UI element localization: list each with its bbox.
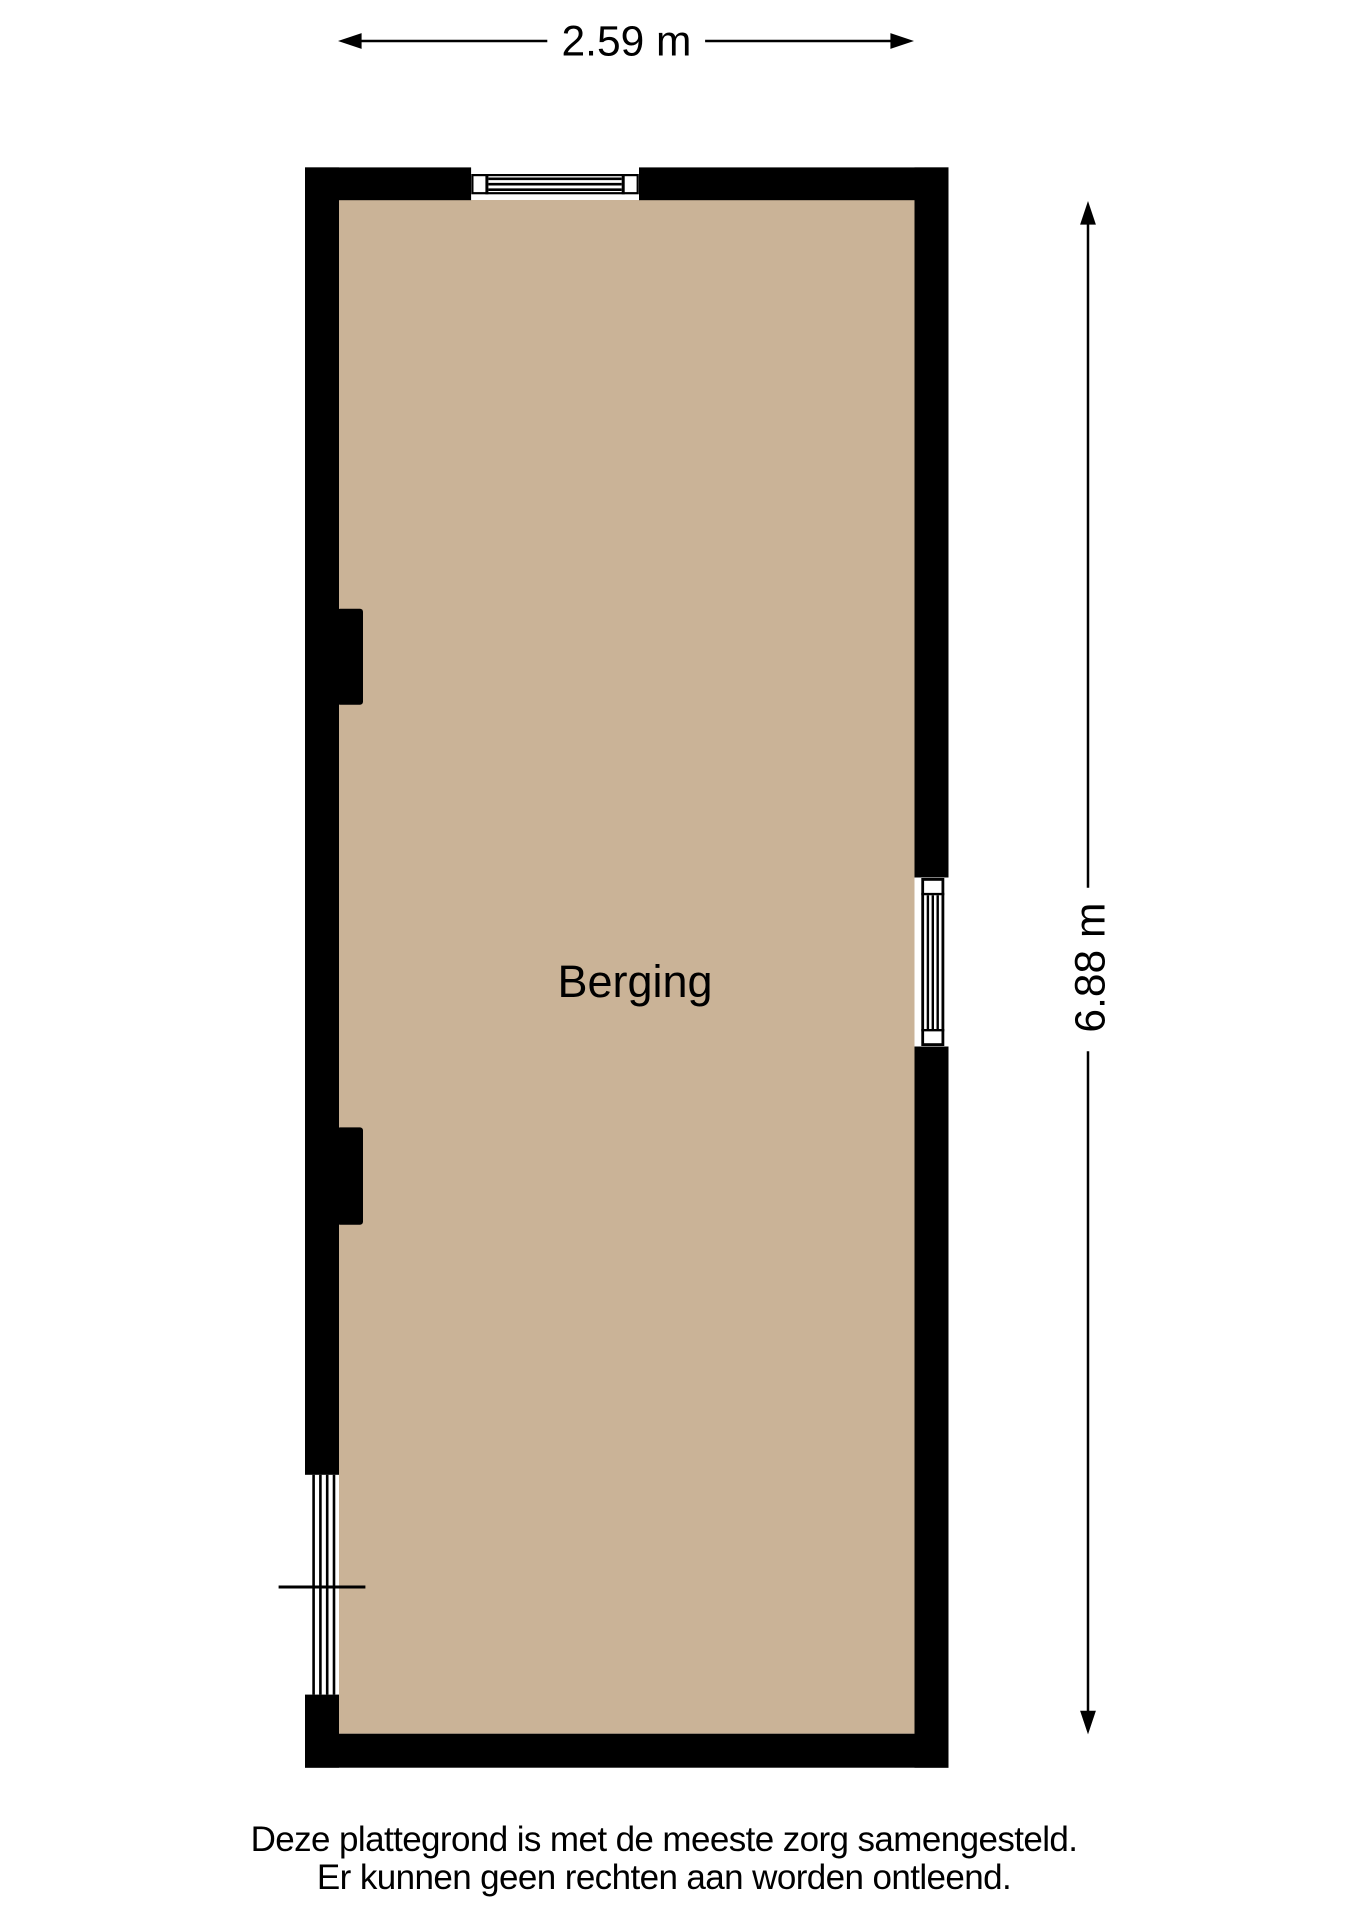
svg-text:Berging: Berging [557, 956, 712, 1007]
svg-text:6.88 m: 6.88 m [1067, 903, 1114, 1033]
svg-text:Er kunnen geen rechten aan wor: Er kunnen geen rechten aan worden ontlee… [317, 1858, 1011, 1897]
svg-text:2.59 m: 2.59 m [562, 18, 692, 65]
svg-text:Deze plattegrond is met de mee: Deze plattegrond is met de meeste zorg s… [251, 1820, 1078, 1859]
